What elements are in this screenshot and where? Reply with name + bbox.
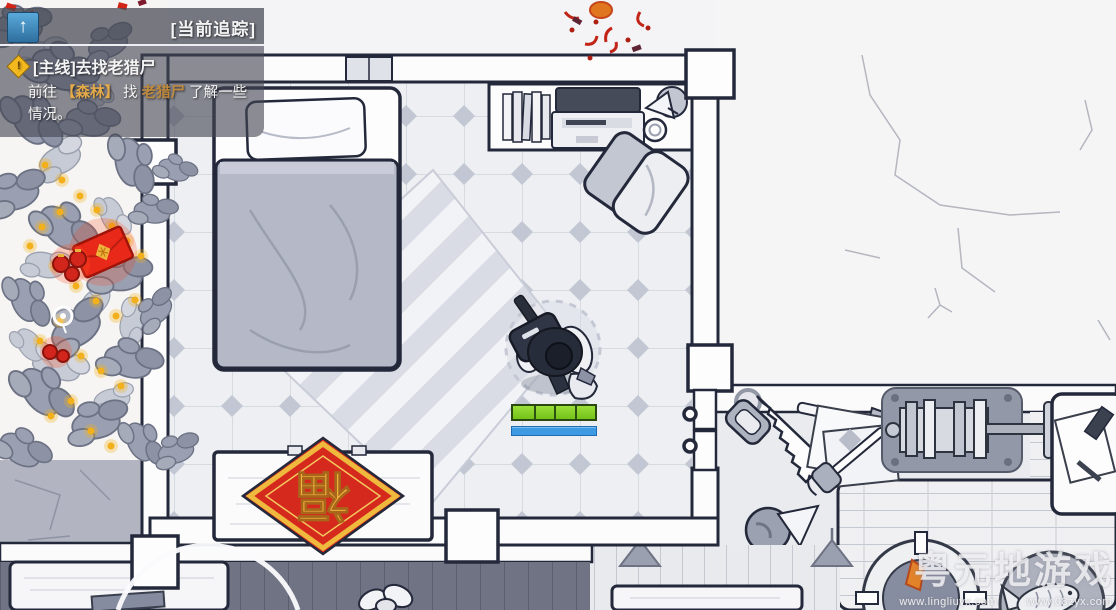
game-screen: 福 [0,0,1116,610]
blanket [216,160,398,368]
pillar-top-right [686,50,734,98]
quest-tracker-panel: ↑ [当前追踪] ! [主线]去找老猎尸 前往 【森林】 找 老猎尸 了解一些情… [0,8,264,137]
cup [644,119,666,141]
fu-character: 福 [296,465,351,525]
door-handle-bottom [684,440,696,452]
head [546,343,572,369]
quest-exclamation-icon: ! [6,54,30,78]
player-status-bars [511,404,597,436]
quest-tracker-title: [当前追踪] [171,15,256,40]
desk [489,84,701,150]
fu-cabinet: 福 [214,438,432,554]
door-handle-top [684,408,696,420]
pillar-right-mid [688,345,732,391]
watermark-brand: 粤元地游戏 [914,540,1114,594]
pillar-bottom [446,510,498,562]
side-table-right [1052,394,1116,514]
quest-location: 【森林】 [61,85,119,101]
watermark-urls: www.lingliuyx.com www.08zyx.com [873,596,1112,608]
quest-title: [主线]去找老猎尸 [33,54,156,78]
wall-bottom-right [496,518,718,545]
books [503,92,550,142]
watermark-url-right: www.08zyx.com [1027,596,1112,608]
collapse-button[interactable]: ↑ [7,12,39,43]
bottom-table-mid [612,586,802,610]
quest-tracker-header: ↑ [当前追踪] [0,8,264,46]
watermark-url-left: www.lingliuyx.com [899,596,997,608]
outdoor-ground-right [715,0,1116,390]
quest-entry[interactable]: ! [主线]去找老猎尸 前往 【森林】 找 老猎尸 了解一些情况。 [0,46,264,137]
roof-slab [0,460,142,546]
quest-description: 前往 【森林】 找 老猎尸 了解一些情况。 [28,83,250,127]
wall-right-upper [692,55,718,385]
health-bar [511,404,597,421]
stamina-bar-fill [512,427,596,435]
quest-target: 老猎尸 [142,85,186,101]
stamina-bar [511,426,597,436]
